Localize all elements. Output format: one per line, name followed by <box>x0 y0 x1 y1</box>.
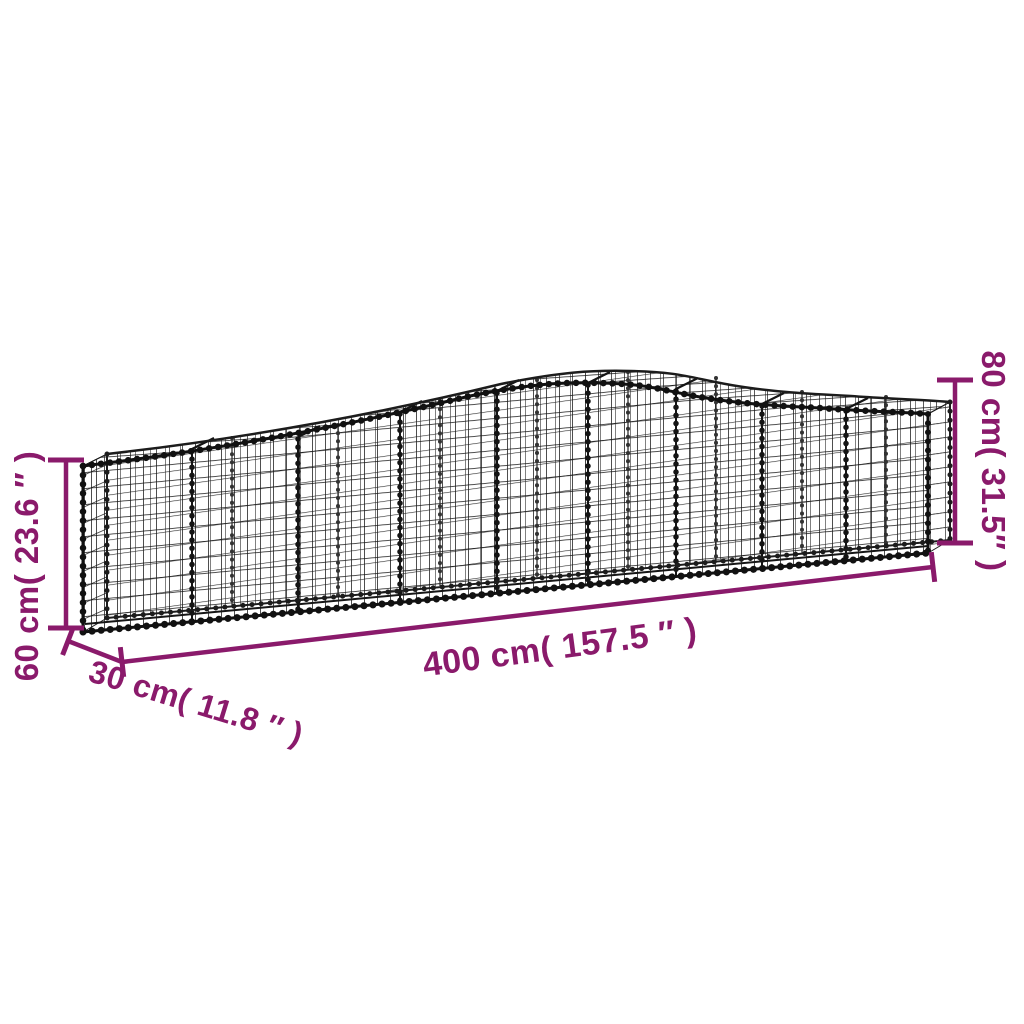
basket-left-end-face <box>83 454 107 632</box>
product-dimension-diagram: 60 cm( 23.6 ″ ) 80 cm( 31.5″ ) 400 cm( 1… <box>0 0 1024 1024</box>
dimension-label-middle-height: 80 cm( 31.5″ ) <box>974 351 1012 572</box>
gabion-basket-illustration <box>0 0 1024 1024</box>
dimension-line-end-height <box>48 460 84 628</box>
basket-right-end-face <box>928 402 950 553</box>
basket-front-face <box>83 383 928 632</box>
dimension-label-end-height: 60 cm( 23.6 ″ ) <box>8 451 46 682</box>
